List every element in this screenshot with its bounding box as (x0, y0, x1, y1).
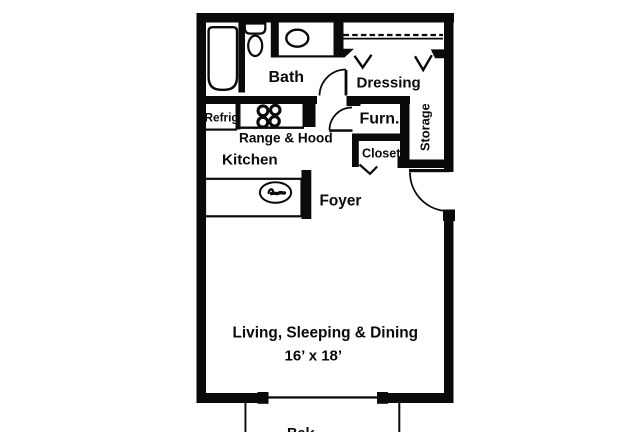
svg-text:Foyer: Foyer (320, 193, 362, 210)
svg-text:Furn.: Furn. (360, 111, 400, 128)
svg-text:Dressing: Dressing (357, 75, 421, 92)
svg-text:Living, Sleeping & Dining: Living, Sleeping & Dining (233, 325, 419, 342)
svg-text:Bath: Bath (269, 69, 305, 86)
svg-text:16’ x 18’: 16’ x 18’ (285, 348, 343, 365)
svg-text:Closet: Closet (362, 147, 401, 161)
svg-text:Refrig: Refrig (205, 111, 239, 125)
svg-text:Storage: Storage (418, 103, 433, 151)
svg-text:Range & Hood: Range & Hood (239, 131, 333, 146)
svg-text:Kitchen: Kitchen (222, 152, 278, 169)
